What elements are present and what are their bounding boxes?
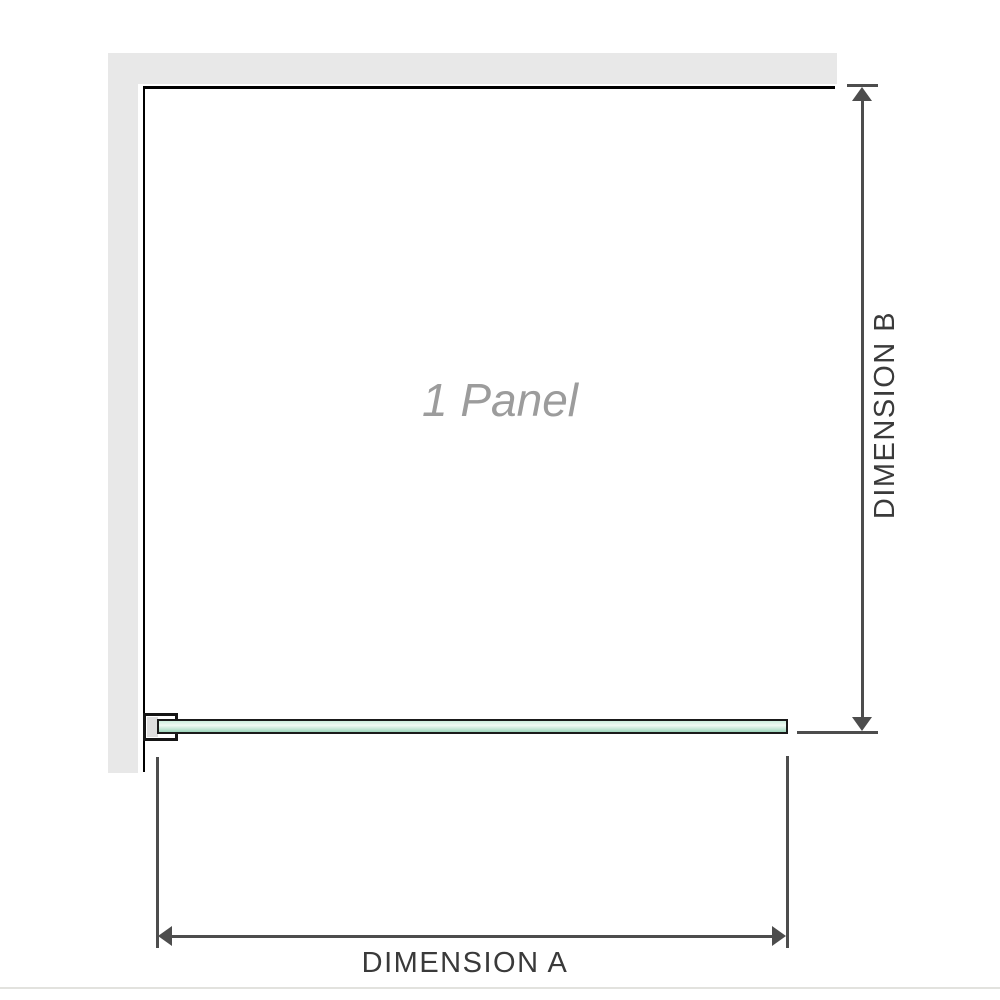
wall-top-bar <box>108 53 837 84</box>
arrow-right-icon <box>772 926 786 946</box>
wall-left-bar <box>108 53 138 773</box>
panel-count-label: 1 Panel <box>350 368 650 432</box>
panel-left-edge <box>143 86 145 772</box>
bottom-divider <box>0 987 1000 989</box>
dimension-b-bottom-tick <box>797 731 878 734</box>
arrow-down-icon <box>852 717 872 731</box>
dimension-b-label: DIMENSION B <box>870 305 900 525</box>
arrow-up-icon <box>852 87 872 101</box>
glass-panel-strip <box>157 719 788 734</box>
dimension-diagram: 1 Panel DIMENSION B DIMENSION A <box>0 0 1000 1000</box>
dimension-b-line <box>861 97 864 720</box>
panel-top-edge <box>143 86 835 89</box>
dimension-a-right-extension <box>786 756 789 948</box>
dimension-a-left-extension <box>156 757 159 948</box>
arrow-left-icon <box>158 926 172 946</box>
dimension-a-line <box>170 935 774 938</box>
dimension-a-label: DIMENSION A <box>315 946 615 980</box>
